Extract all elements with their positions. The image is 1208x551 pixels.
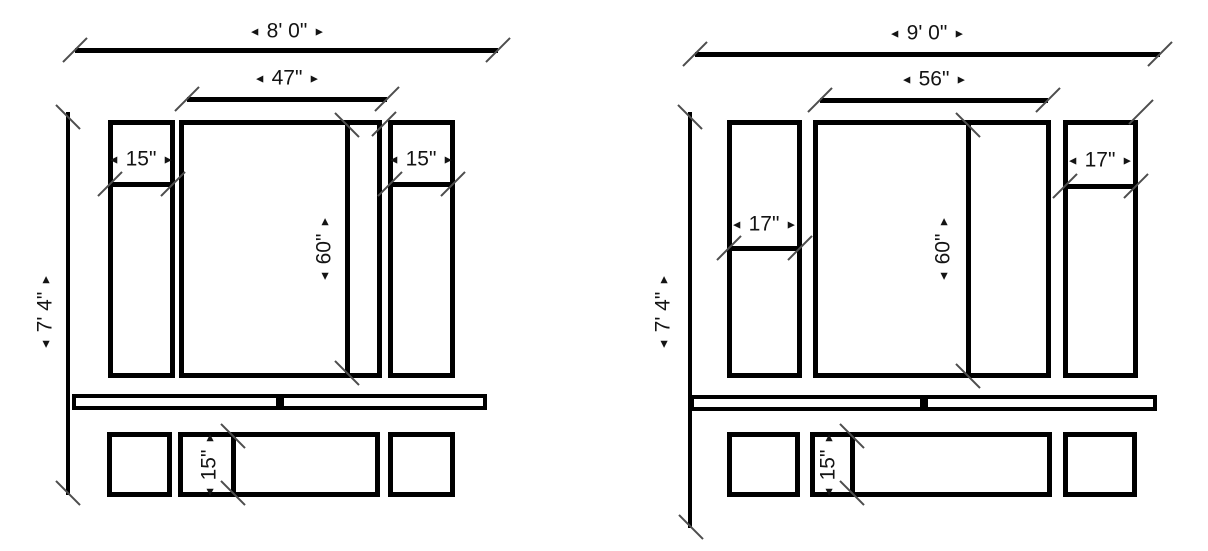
left-stile-value: 17"	[749, 214, 780, 235]
center-width-dim-line	[187, 97, 387, 102]
center-width-value: 47"	[272, 68, 303, 89]
left-arrow-icon: ◄	[254, 72, 266, 84]
panel-height-label: ◄ 60" ►	[314, 216, 335, 283]
right-stile-value: 15"	[406, 149, 437, 170]
overall-height-dim-line	[688, 112, 692, 528]
right-stile-value: 17"	[1085, 150, 1116, 171]
right-arrow-icon: ►	[308, 72, 320, 84]
drawing-canvas: ◄ 8' 0" ► ◄ 47" ► ◄ 7' 4" ► ◄ 15" ►	[0, 0, 1208, 551]
overall-height-dim-line	[66, 112, 70, 495]
base-left-box	[107, 432, 172, 497]
center-width-label: ◄ 47" ►	[254, 68, 321, 89]
left-arrow-icon: ◄	[822, 486, 834, 498]
base-height-dim-line	[231, 432, 236, 497]
center-width-value: 56"	[919, 69, 950, 90]
base-height-value: 15"	[199, 450, 220, 481]
panel-height-dim-line	[345, 120, 350, 378]
right-arrow-icon: ►	[39, 274, 51, 286]
base-height-label: ◄ 15" ►	[199, 432, 220, 499]
right-stile-label: ◄ 17" ►	[1067, 150, 1134, 171]
panel-height-label: ◄ 60" ►	[933, 216, 954, 283]
panel-height-dim-line	[966, 120, 971, 378]
left-arrow-icon: ◄	[108, 153, 120, 165]
right-stile-dim-line	[388, 182, 455, 187]
right-arrow-icon: ►	[313, 25, 325, 37]
right-arrow-icon: ►	[442, 153, 454, 165]
chair-rail-right-piece	[924, 395, 1157, 411]
left-stile-dim-line	[108, 182, 175, 187]
base-height-dim-line	[850, 432, 855, 497]
right-arrow-icon: ►	[955, 73, 967, 85]
left-arrow-icon: ◄	[937, 270, 949, 282]
base-left-box	[727, 432, 800, 497]
overall-width-value: 9' 0"	[907, 23, 948, 44]
overall-width-value: 8' 0"	[267, 21, 308, 42]
panel-height-value: 60"	[314, 234, 335, 265]
right-arrow-icon: ►	[203, 432, 215, 444]
right-arrow-icon: ►	[318, 216, 330, 228]
base-height-label: ◄ 15" ►	[818, 432, 839, 499]
left-arrow-icon: ◄	[901, 73, 913, 85]
dim-tick	[1128, 99, 1153, 124]
overall-height-value: 7' 4"	[35, 292, 56, 333]
left-stile-dim-line	[727, 246, 802, 251]
left-arrow-icon: ◄	[1067, 154, 1079, 166]
left-stile-value: 15"	[126, 149, 157, 170]
base-right-box	[388, 432, 455, 497]
base-right-box	[1063, 432, 1137, 497]
overall-width-label: ◄ 8' 0" ►	[249, 21, 325, 42]
right-arrow-icon: ►	[937, 216, 949, 228]
right-arrow-icon: ►	[162, 153, 174, 165]
overall-height-label: ◄ 7' 4" ►	[35, 274, 56, 350]
right-arrow-icon: ►	[657, 274, 669, 286]
chair-rail-left-piece	[72, 394, 280, 410]
right-arrow-icon: ►	[953, 27, 965, 39]
overall-width-dim-line	[75, 48, 498, 53]
left-stile-label: ◄ 17" ►	[731, 214, 798, 235]
chair-rail-right-piece	[280, 394, 487, 410]
left-arrow-icon: ◄	[249, 25, 261, 37]
overall-width-label: ◄ 9' 0" ►	[889, 23, 965, 44]
left-arrow-icon: ◄	[889, 27, 901, 39]
left-arrow-icon: ◄	[39, 338, 51, 350]
center-panel	[179, 120, 382, 378]
right-arrow-icon: ►	[785, 218, 797, 230]
right-stile-label: ◄ 15" ►	[388, 149, 455, 170]
left-stile-label: ◄ 15" ►	[108, 149, 175, 170]
overall-height-value: 7' 4"	[653, 292, 674, 333]
overall-width-dim-line	[695, 52, 1160, 57]
base-height-value: 15"	[818, 450, 839, 481]
overall-height-label: ◄ 7' 4" ►	[653, 274, 674, 350]
panel-height-value: 60"	[933, 234, 954, 265]
left-arrow-icon: ◄	[203, 486, 215, 498]
chair-rail-left-piece	[690, 395, 924, 411]
center-width-dim-line	[820, 98, 1048, 103]
left-arrow-icon: ◄	[731, 218, 743, 230]
left-arrow-icon: ◄	[657, 338, 669, 350]
right-stile-dim-line	[1063, 184, 1138, 189]
right-arrow-icon: ►	[822, 432, 834, 444]
right-arrow-icon: ►	[1121, 154, 1133, 166]
left-arrow-icon: ◄	[318, 270, 330, 282]
center-width-label: ◄ 56" ►	[901, 69, 968, 90]
left-arrow-icon: ◄	[388, 153, 400, 165]
